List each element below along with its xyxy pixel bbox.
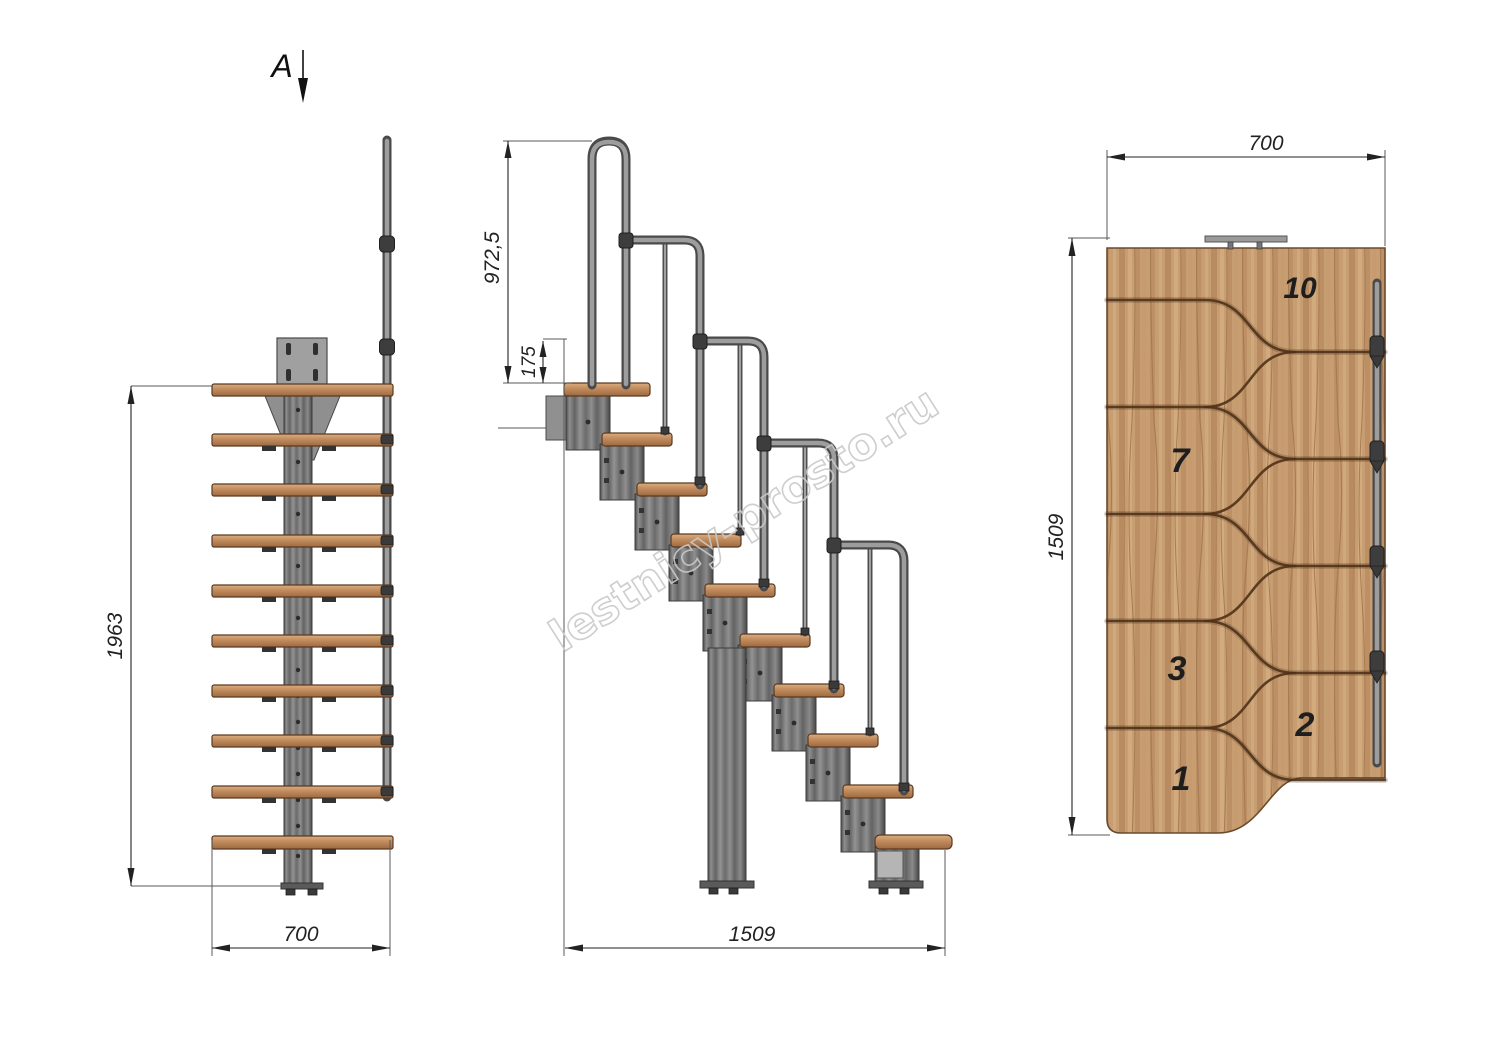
side-support-column bbox=[700, 648, 754, 894]
dim-label-side-run: 1509 bbox=[729, 923, 776, 946]
dim-label-front-width: 700 bbox=[283, 923, 318, 946]
dim-label-front-height: 1963 bbox=[104, 612, 127, 659]
drawing-page: A bbox=[0, 0, 1500, 1061]
side-wall-plate bbox=[546, 396, 568, 440]
plate-slot bbox=[313, 343, 318, 355]
plate-slot bbox=[313, 369, 318, 381]
plan-view: 10 7 3 2 1 bbox=[1107, 236, 1385, 833]
step-number-1: 1 bbox=[1172, 760, 1191, 798]
dim-label-plan-width: 700 bbox=[1248, 132, 1283, 155]
step-number-10: 10 bbox=[1283, 272, 1317, 305]
plate-slot bbox=[286, 369, 291, 381]
plate-slot bbox=[286, 343, 291, 355]
section-label: A bbox=[269, 48, 292, 84]
dim-label-plan-length: 1509 bbox=[1045, 513, 1068, 560]
dim-label-side-top-offset: 175 bbox=[519, 346, 540, 378]
dim-label-side-rail-height: 972,5 bbox=[481, 231, 504, 284]
step-number-3: 3 bbox=[1168, 650, 1187, 688]
step-number-7: 7 bbox=[1171, 442, 1192, 480]
step-number-2: 2 bbox=[1295, 706, 1315, 744]
staircase-technical-drawing: A bbox=[0, 0, 1500, 1061]
